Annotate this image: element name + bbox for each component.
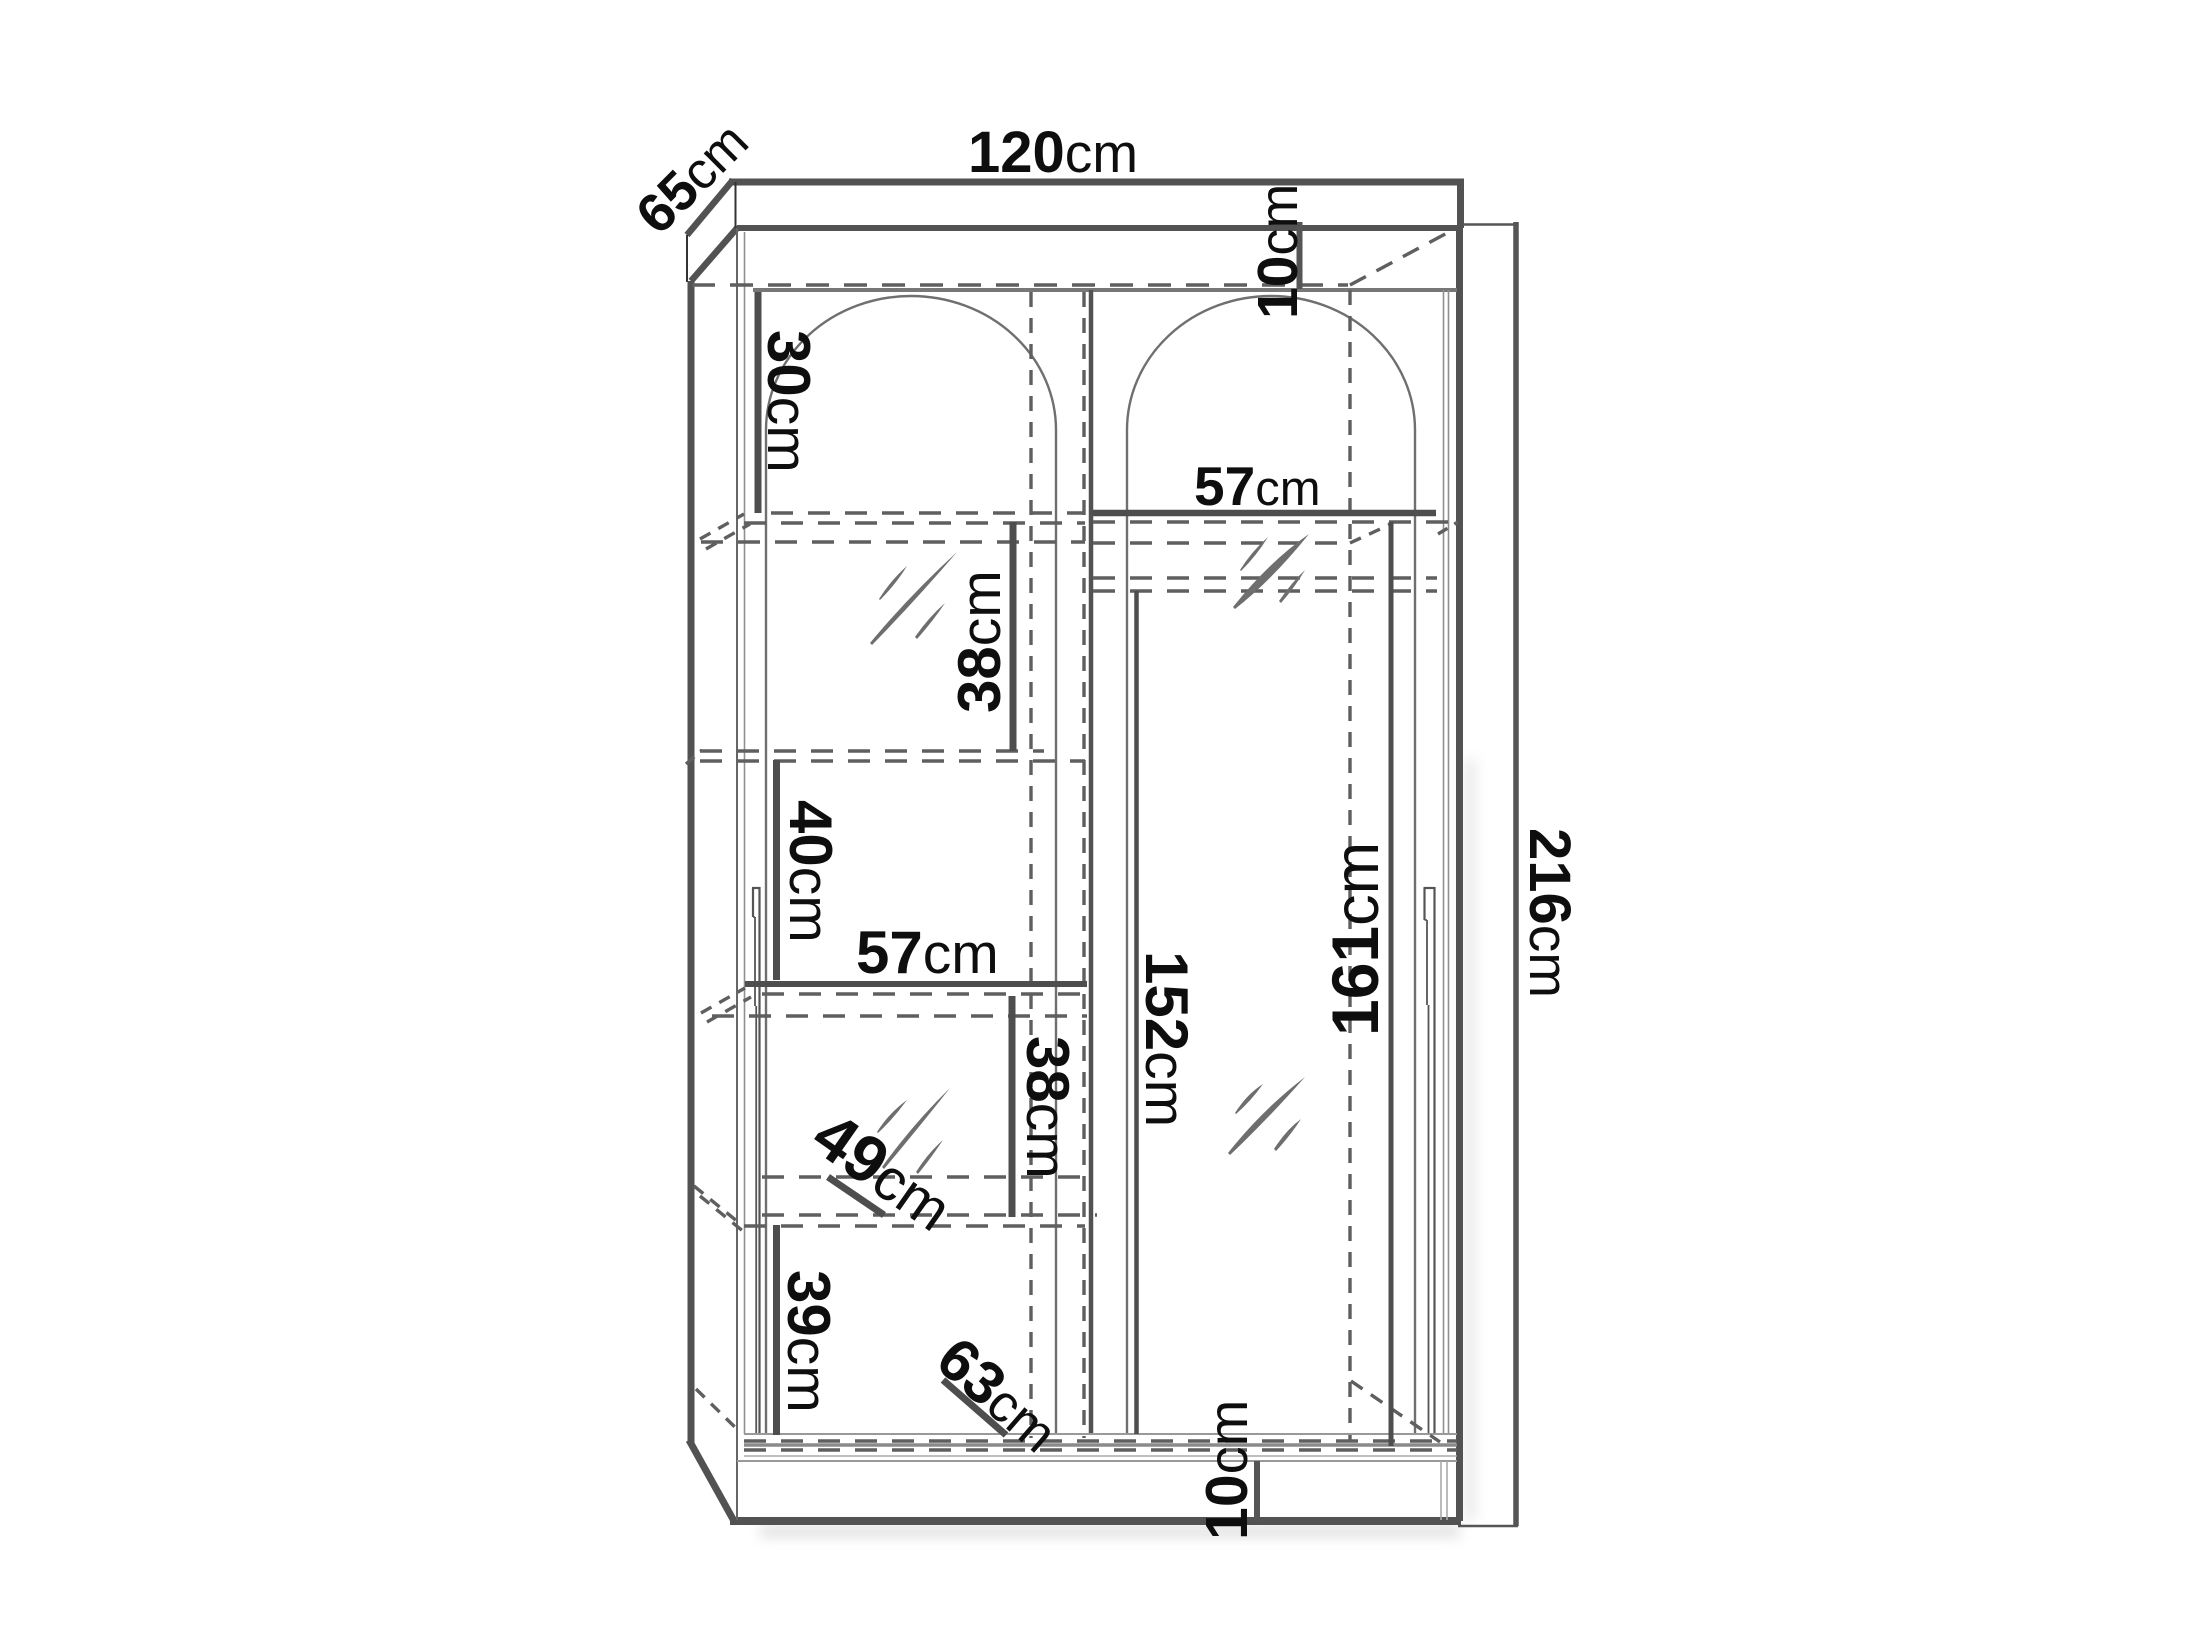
svg-text:49cm: 49cm bbox=[800, 1097, 967, 1245]
svg-text:57cm: 57cm bbox=[1194, 455, 1321, 517]
svg-text:10cm: 10cm bbox=[1246, 184, 1310, 319]
svg-text:38cm: 38cm bbox=[1014, 1036, 1081, 1179]
svg-text:120cm: 120cm bbox=[968, 120, 1138, 185]
svg-text:30cm: 30cm bbox=[755, 330, 822, 473]
svg-text:10cm: 10cm bbox=[1194, 1400, 1260, 1540]
svg-text:38cm: 38cm bbox=[946, 570, 1013, 713]
svg-text:39cm: 39cm bbox=[775, 1270, 842, 1413]
svg-text:152cm: 152cm bbox=[1133, 951, 1200, 1127]
svg-text:216cm: 216cm bbox=[1517, 828, 1582, 998]
svg-text:161cm: 161cm bbox=[1318, 842, 1392, 1036]
svg-text:40cm: 40cm bbox=[777, 800, 844, 943]
svg-text:57cm: 57cm bbox=[856, 919, 999, 986]
